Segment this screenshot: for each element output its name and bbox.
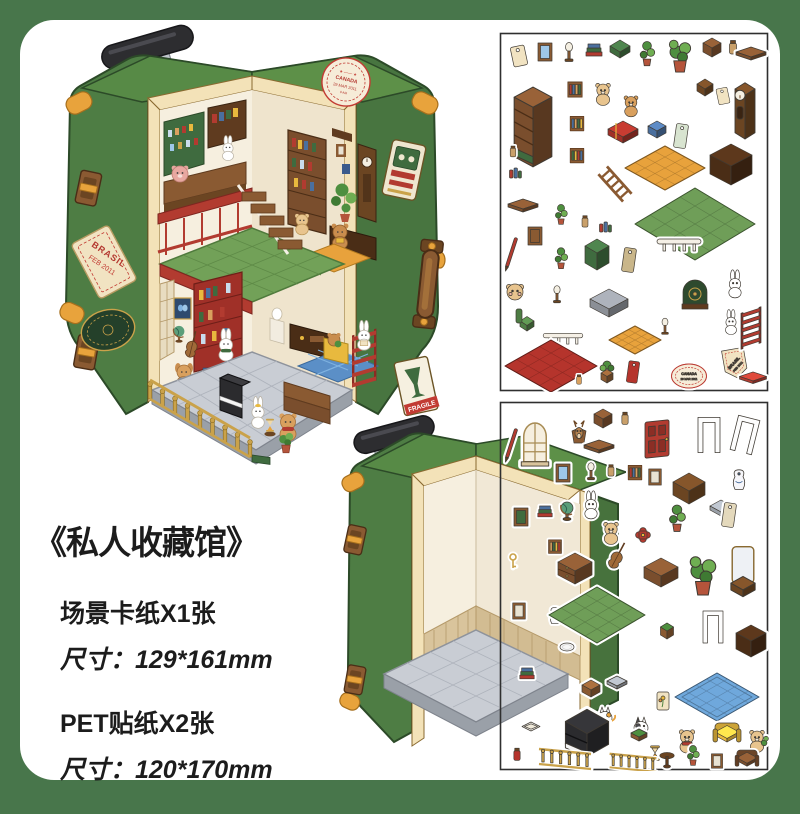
sticker-plate [560, 643, 574, 651]
sticker-doorframe [703, 611, 723, 643]
sticker-frame [711, 754, 722, 768]
sticker-tray [522, 722, 540, 731]
sticker-sheet-2 [499, 401, 769, 771]
sticker-books [538, 506, 552, 517]
sticker-vase [733, 470, 745, 490]
sticker-frame [538, 43, 552, 61]
sticker-shelfbooks [628, 465, 642, 479]
sticker-box [644, 558, 678, 587]
sticker-mirror [731, 547, 755, 597]
spec-cardboard: 场景卡纸X1张 尺寸：129*161mm [34, 594, 344, 676]
sticker-shelfbooks [570, 148, 584, 162]
sticker-box [697, 79, 713, 96]
bunny-pianist [252, 397, 265, 429]
sticker-box [582, 680, 600, 697]
svg-text:29 MAR 2011: 29 MAR 2011 [681, 377, 698, 381]
sticker-plant [690, 557, 716, 595]
sticker-tagv [673, 123, 688, 148]
sticker-plantv [555, 205, 567, 225]
spec-pet-name: PET贴纸X2张 [60, 704, 344, 740]
sticker-box [648, 121, 666, 138]
sticker-tagv [626, 361, 640, 384]
sticker-record [682, 280, 708, 309]
sticker-books [586, 44, 602, 56]
sticker-bookcase [514, 87, 552, 167]
fragile-sticker: FRAGILE [394, 356, 440, 416]
sticker-shelfbooks [570, 116, 584, 130]
sticker-plantv [640, 42, 655, 66]
sticker-doorframe [698, 417, 720, 452]
sticker-bear [624, 96, 638, 117]
sticker-sofa [713, 723, 741, 742]
sticker-frame [514, 508, 528, 526]
sticker-pen [504, 237, 518, 271]
sticker-floor [505, 340, 597, 392]
sticker-sheet-1: CANADA29 MAR 2011CANADA29 MAR 2011BRASIL… [499, 32, 769, 392]
sticker-balusters [610, 754, 657, 771]
sticker-globe [561, 502, 573, 521]
sticker-tagv [721, 502, 736, 527]
sticker-floor [549, 587, 645, 643]
spec-cardboard-name: 场景卡纸X1张 [60, 594, 344, 630]
sticker-window [521, 423, 549, 466]
bust-statue [270, 308, 284, 344]
sticker-shelfw [508, 199, 538, 212]
sticker-box [594, 409, 612, 428]
sticker-tagv [621, 247, 636, 272]
product-title: 《私人收藏馆》 [34, 516, 344, 564]
sticker-sofa [735, 750, 759, 766]
bunny-barista [222, 136, 233, 161]
sticker-frame [556, 464, 570, 482]
sticker-pen [504, 428, 518, 462]
sticker-flower [657, 692, 669, 710]
sticker-chair [516, 309, 534, 331]
sticker-box [736, 625, 766, 657]
bunny-sitting [358, 320, 371, 350]
sticker-bear [596, 83, 611, 105]
sticker-shelfbooks [549, 540, 562, 554]
sticker-table [660, 752, 674, 768]
sticker-jar [510, 146, 516, 157]
sticker-key [510, 554, 516, 568]
sticker-bunny [725, 310, 736, 335]
sticker-frame [528, 227, 542, 245]
sticker-box [703, 38, 721, 57]
potted-plant [279, 433, 293, 453]
sticker-rug [675, 673, 759, 721]
sticker-clock [735, 83, 755, 139]
sticker-jars [510, 168, 522, 178]
sticker-door [645, 420, 669, 459]
sticker-box [585, 239, 609, 270]
product-image: BRASIL FEB 2011 ★ ─── ★ CANADA 29 MAR 20… [0, 0, 800, 800]
bunny-scarf [219, 329, 233, 362]
sticker-bear [604, 522, 619, 544]
sticker-lamp [662, 318, 669, 334]
sticker-box [607, 676, 627, 689]
sticker-box [710, 144, 752, 185]
sticker-dresser [558, 553, 592, 584]
sticker-box [610, 40, 630, 58]
sticker-bigbook [608, 121, 638, 143]
pink-bear [172, 166, 189, 182]
sticker-jar [514, 748, 520, 760]
sticker-bearface [506, 284, 523, 300]
sticker-lamp [553, 286, 560, 303]
sticker-doorframe [730, 415, 760, 454]
sticker-plantv [670, 505, 686, 531]
sticker-floor [609, 326, 661, 354]
sticker-lamp [587, 463, 594, 480]
sticker-jar [608, 465, 614, 476]
sticker-stampoval: CANADA29 MAR 2011CANADA29 MAR 2011 [672, 364, 707, 388]
sticker-shelfw [584, 440, 614, 453]
product-info: 《私人收藏馆》 场景卡纸X1张 尺寸：129*161mm PET贴纸X2张 尺寸… [34, 516, 344, 814]
spec-cardboard-size: 尺寸：129*161mm [60, 640, 344, 676]
sticker-tag [716, 87, 730, 105]
sticker-plant [669, 40, 690, 72]
sticker-plantv [687, 746, 699, 766]
sticker-frame [649, 469, 662, 485]
sticker-shelfbooks [568, 82, 582, 97]
sticker-books [520, 668, 534, 679]
sticker-floor [625, 146, 705, 190]
sticker-tag [510, 45, 528, 67]
sticker-bench [631, 729, 647, 741]
sticker-bunny [585, 491, 597, 519]
sticker-lamp [565, 43, 573, 62]
sticker-jar [582, 216, 588, 227]
sticker-ornament [636, 528, 651, 543]
sticker-box [590, 289, 628, 317]
svg-text:CANADA: CANADA [681, 372, 697, 376]
sticker-bunny [729, 270, 741, 298]
spec-pet-sticker: PET贴纸X2张 尺寸：120*170mm [34, 704, 344, 786]
sticker-plantv [555, 248, 568, 269]
sticker-redrack [741, 307, 761, 349]
spec-pet-size: 尺寸：120*170mm [60, 750, 344, 786]
sticker-box [673, 473, 705, 504]
sticker-jars [600, 222, 612, 232]
sticker-deer [572, 421, 586, 443]
sticker-shelfw [740, 372, 767, 384]
sticker-shelfw [736, 47, 766, 60]
sticker-jar [577, 375, 582, 384]
sticker-frame [513, 603, 526, 619]
sticker-jar [622, 412, 628, 424]
sticker-stoolp [600, 361, 614, 383]
sticker-stool [661, 623, 674, 639]
